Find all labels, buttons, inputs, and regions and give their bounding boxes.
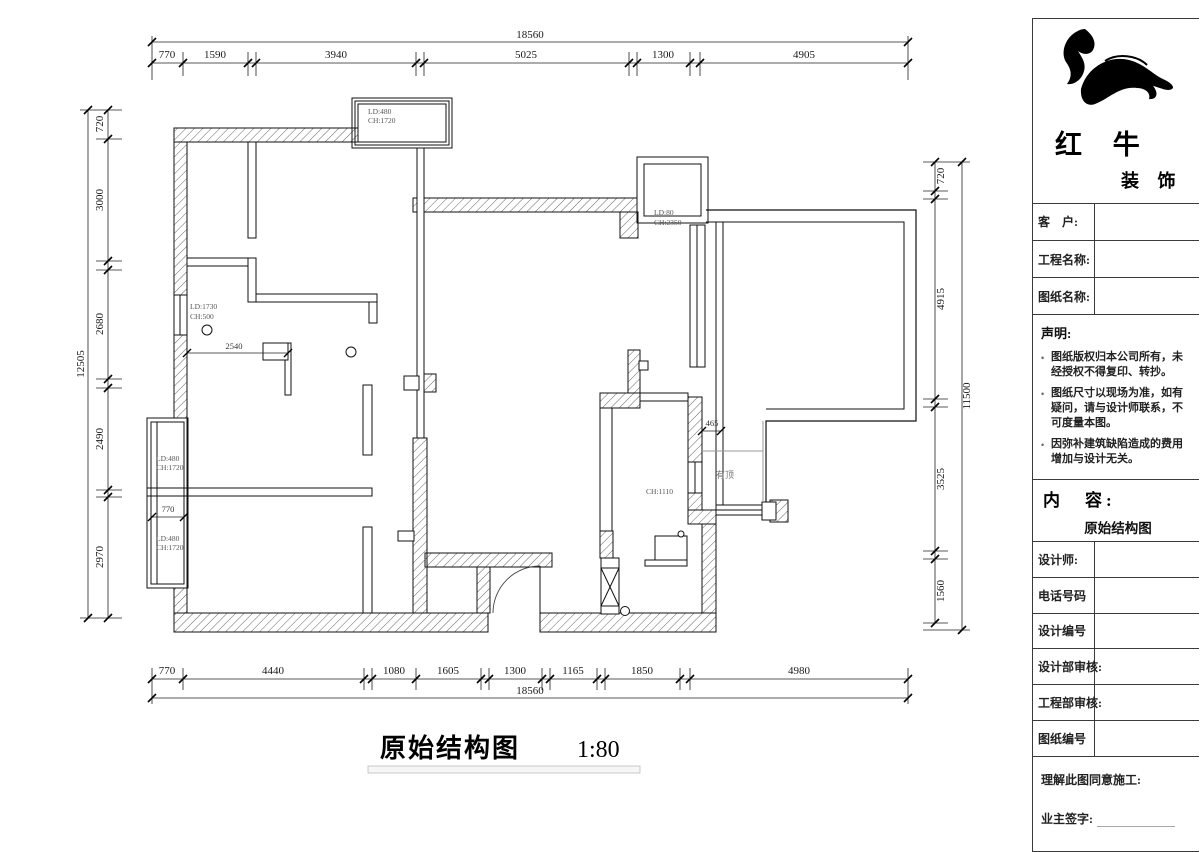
field-value-customer[interactable] bbox=[1095, 204, 1199, 241]
field-label-engineering-review: 工程部审核: bbox=[1033, 685, 1095, 720]
dim-left-1: 3000 bbox=[94, 189, 106, 212]
dim-2540: 2540 bbox=[226, 341, 243, 351]
field-row-customer: 客 户: bbox=[1033, 204, 1199, 242]
statement-cell: 声明: 图纸版权归本公司所有，未经授权不得复印、转抄。 图纸尺寸以现场为准，如有… bbox=[1033, 315, 1199, 480]
dim-top-5: 4905 bbox=[793, 49, 816, 61]
label-window-top-ch: CH:1720 bbox=[368, 116, 396, 125]
dim-top-4: 1300 bbox=[652, 49, 675, 61]
ceiling-point-2 bbox=[346, 347, 356, 357]
field-label-design-no: 设计编号 bbox=[1033, 614, 1095, 649]
label-bay-lower-ch: CH:1720 bbox=[156, 543, 184, 552]
dim-left-0: 720 bbox=[94, 115, 106, 132]
dim-right-1: 4915 bbox=[935, 288, 947, 311]
field-row-sheet-no: 图纸编号 bbox=[1033, 721, 1199, 757]
signature-cell: 理解此图同意施工: 业主签字: bbox=[1033, 757, 1199, 851]
label-window-top-ld: LD:480 bbox=[368, 107, 392, 116]
dim-bottom-total: 18560 bbox=[516, 685, 544, 697]
title-underline-bar bbox=[368, 766, 640, 773]
label-window-right-ld: LD:80 bbox=[654, 208, 674, 217]
agreement-text: 理解此图同意施工: bbox=[1041, 771, 1193, 788]
dim-left-2: 2680 bbox=[94, 313, 106, 336]
label-window-left-ld: LD:1730 bbox=[190, 302, 217, 311]
sheet-title: 原始结构图 1:80 bbox=[368, 734, 640, 773]
statement-item-3: 因弥补建筑缺陷造成的费用增加与设计无关。 bbox=[1041, 437, 1193, 467]
field-label-project-name: 工程名称: bbox=[1033, 241, 1095, 277]
field-row-designer: 设计师: bbox=[1033, 542, 1199, 578]
field-value-design-review[interactable] bbox=[1095, 649, 1199, 684]
field-label-phone: 电话号码 bbox=[1033, 578, 1095, 613]
label-bay-upper-ld: LD:480 bbox=[156, 454, 180, 463]
owner-signature-line[interactable] bbox=[1097, 816, 1175, 827]
entry-door bbox=[493, 566, 540, 613]
field-row-design-no: 设计编号 bbox=[1033, 614, 1199, 650]
label-window-right-ch: CH:2350 bbox=[654, 218, 682, 227]
dim-left-text: 720 3000 2680 2490 2970 12505 bbox=[75, 115, 106, 568]
logo-cell: 红 牛 装 饰 bbox=[1033, 19, 1199, 204]
terrace-rail bbox=[716, 222, 723, 505]
label-wall-height: CH:1110 bbox=[646, 487, 673, 496]
terrace-outline bbox=[702, 210, 916, 502]
field-label-customer: 客 户: bbox=[1033, 204, 1095, 241]
dim-right-2: 3525 bbox=[935, 468, 947, 491]
content-value: 原始结构图 bbox=[1043, 517, 1193, 537]
field-value-phone[interactable] bbox=[1095, 578, 1199, 613]
drain-circle bbox=[621, 607, 630, 616]
dim-right-0: 720 bbox=[935, 167, 947, 184]
cad-sheet: 18560 770 1590 3940 5025 1300 4905 770 4… bbox=[0, 0, 1200, 852]
dim-right-3: 1560 bbox=[935, 580, 947, 603]
field-row-sheet-name: 图纸名称: bbox=[1033, 278, 1199, 315]
dim-bottom-text: 770 4440 1080 1605 1300 1165 1850 4980 1… bbox=[159, 665, 811, 697]
dim-right-total: 11500 bbox=[961, 382, 973, 410]
shaft-cap bbox=[601, 558, 619, 568]
dim-top-3: 5025 bbox=[515, 49, 538, 61]
statement-title: 声明: bbox=[1041, 323, 1193, 342]
dim-top-0: 770 bbox=[159, 49, 176, 61]
dim-left-4: 2970 bbox=[94, 546, 106, 569]
dim-bottom-5: 1165 bbox=[562, 665, 584, 677]
dim-770: 770 bbox=[162, 504, 175, 514]
content-label: 内 容: bbox=[1043, 486, 1193, 511]
label-bay-lower-ld: LD:480 bbox=[156, 534, 180, 543]
counter bbox=[645, 560, 687, 566]
field-row-design-review: 设计部审核: bbox=[1033, 649, 1199, 685]
dim-bottom-6: 1850 bbox=[631, 665, 654, 677]
title-block-panel: 红 牛 装 饰 客 户: 工程名称: 图纸名称: 声明: 图纸版权归本公司所有，… bbox=[1032, 18, 1199, 852]
field-value-designer[interactable] bbox=[1095, 542, 1199, 577]
field-label-design-review: 设计部审核: bbox=[1033, 649, 1095, 684]
label-window-left-ch: CH:500 bbox=[190, 312, 214, 321]
field-row-engineering-review: 工程部审核: bbox=[1033, 685, 1199, 721]
field-value-sheet-no[interactable] bbox=[1095, 721, 1199, 756]
field-label-sheet-name: 图纸名称: bbox=[1033, 278, 1095, 314]
fixtures bbox=[202, 325, 687, 616]
brand-name-main: 红 牛 bbox=[1055, 123, 1152, 162]
dim-bottom-0: 770 bbox=[159, 665, 176, 677]
drawing-scale: 1:80 bbox=[577, 737, 620, 763]
drawing-title: 原始结构图 bbox=[380, 734, 520, 763]
field-value-engineering-review[interactable] bbox=[1095, 685, 1199, 720]
dim-top-total: 18560 bbox=[516, 29, 544, 41]
dim-top-2: 3940 bbox=[325, 49, 348, 61]
field-value-project-name[interactable] bbox=[1095, 241, 1199, 277]
field-value-design-no[interactable] bbox=[1095, 614, 1199, 649]
label-covered-area: 有顶 bbox=[716, 469, 734, 480]
field-label-designer: 设计师: bbox=[1033, 542, 1095, 577]
red-bull-logo bbox=[1047, 27, 1183, 123]
statement-item-1: 图纸版权归本公司所有，未经授权不得复印、转抄。 bbox=[1041, 350, 1193, 380]
dim-bottom-1: 4440 bbox=[262, 665, 285, 677]
field-row-project-name: 工程名称: bbox=[1033, 241, 1199, 278]
content-cell: 内 容: 原始结构图 bbox=[1033, 480, 1199, 542]
floor-plan-svg: 18560 770 1590 3940 5025 1300 4905 770 4… bbox=[0, 0, 1030, 852]
field-label-sheet-no: 图纸编号 bbox=[1033, 721, 1095, 756]
dim-top-text: 18560 770 1590 3940 5025 1300 4905 bbox=[159, 29, 816, 61]
statement-item-2: 图纸尺寸以现场为准，如有疑问，请与设计师联系，不可度量本图。 bbox=[1041, 386, 1193, 431]
dim-bottom-7: 4980 bbox=[788, 665, 811, 677]
dim-left-total: 12505 bbox=[75, 350, 87, 378]
dim-left-3: 2490 bbox=[94, 428, 106, 451]
owner-signature-label: 业主签字: bbox=[1041, 810, 1093, 827]
dim-top-1: 1590 bbox=[204, 49, 227, 61]
dim-bottom-2: 1080 bbox=[383, 665, 406, 677]
dim-bottom-4: 1300 bbox=[504, 665, 527, 677]
field-row-phone: 电话号码 bbox=[1033, 578, 1199, 614]
ceiling-point-1 bbox=[202, 325, 212, 335]
label-bay-upper-ch: CH:1720 bbox=[156, 463, 184, 472]
field-value-sheet-name[interactable] bbox=[1095, 278, 1199, 314]
dim-465: 465 bbox=[706, 418, 719, 428]
brand-name-sub: 装 饰 bbox=[1121, 167, 1183, 193]
bay-window-left bbox=[147, 418, 188, 588]
dim-right-text: 720 4915 3525 1560 11500 bbox=[935, 167, 973, 602]
dim-bottom-3: 1605 bbox=[437, 665, 460, 677]
